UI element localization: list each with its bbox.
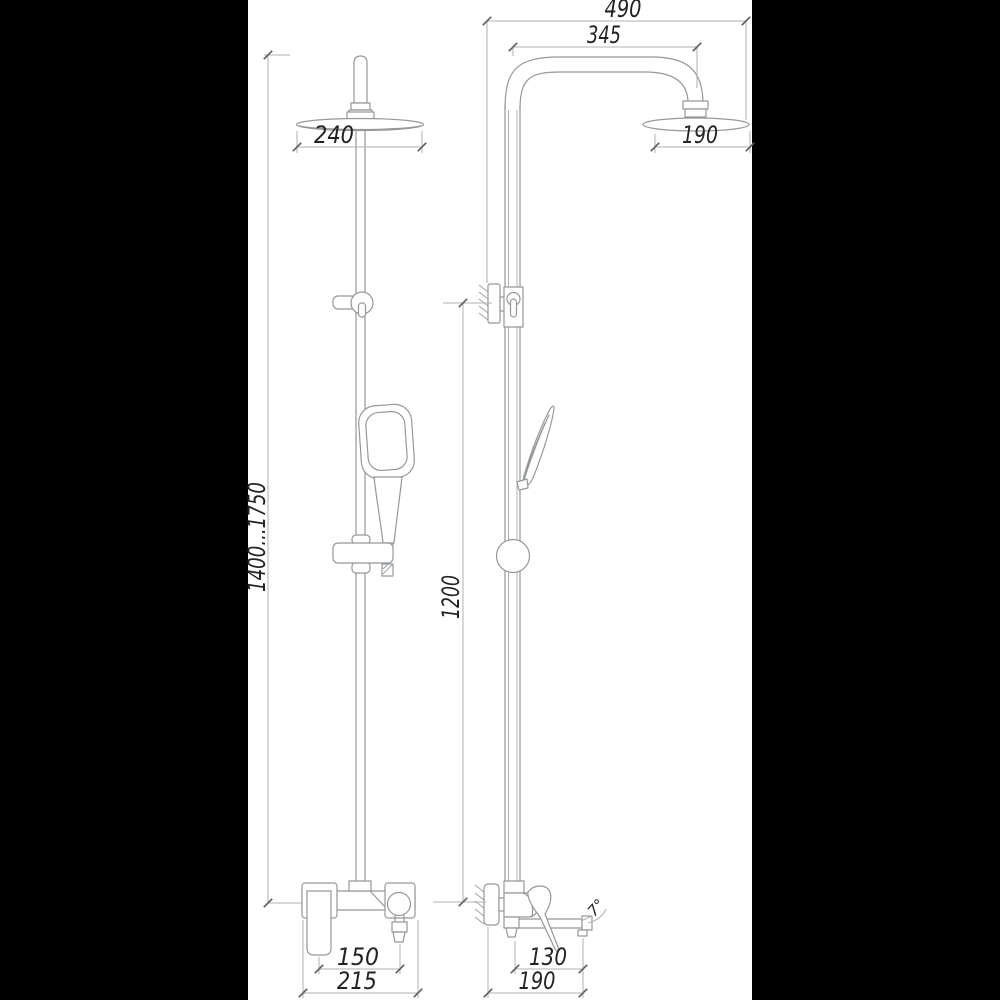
dim-label-190-depth: 190	[519, 967, 556, 995]
drawing-page: 7° 490 345 240	[0, 0, 1000, 1000]
wall-flange-side	[484, 884, 499, 925]
dim-label-490: 490	[605, 0, 642, 23]
dim-label-345: 345	[587, 21, 621, 49]
dim-label-190-head: 190	[682, 121, 718, 149]
mixer-lever-front	[307, 891, 331, 955]
dim-label-1400-1750: 1400...1750	[243, 482, 271, 592]
dim-label-240: 240	[314, 121, 354, 149]
union-nut-side	[504, 881, 524, 893]
paper-sheet	[248, 0, 752, 1000]
hand-shower-head-outer	[358, 403, 416, 480]
technical-drawing: 7° 490 345 240	[0, 0, 1000, 1000]
dim-label-1200: 1200	[437, 575, 465, 619]
slider-knob-side	[497, 540, 530, 573]
column-union-nut	[349, 881, 371, 891]
hose-nipple-front	[382, 564, 393, 576]
dim-label-215: 215	[337, 967, 377, 995]
